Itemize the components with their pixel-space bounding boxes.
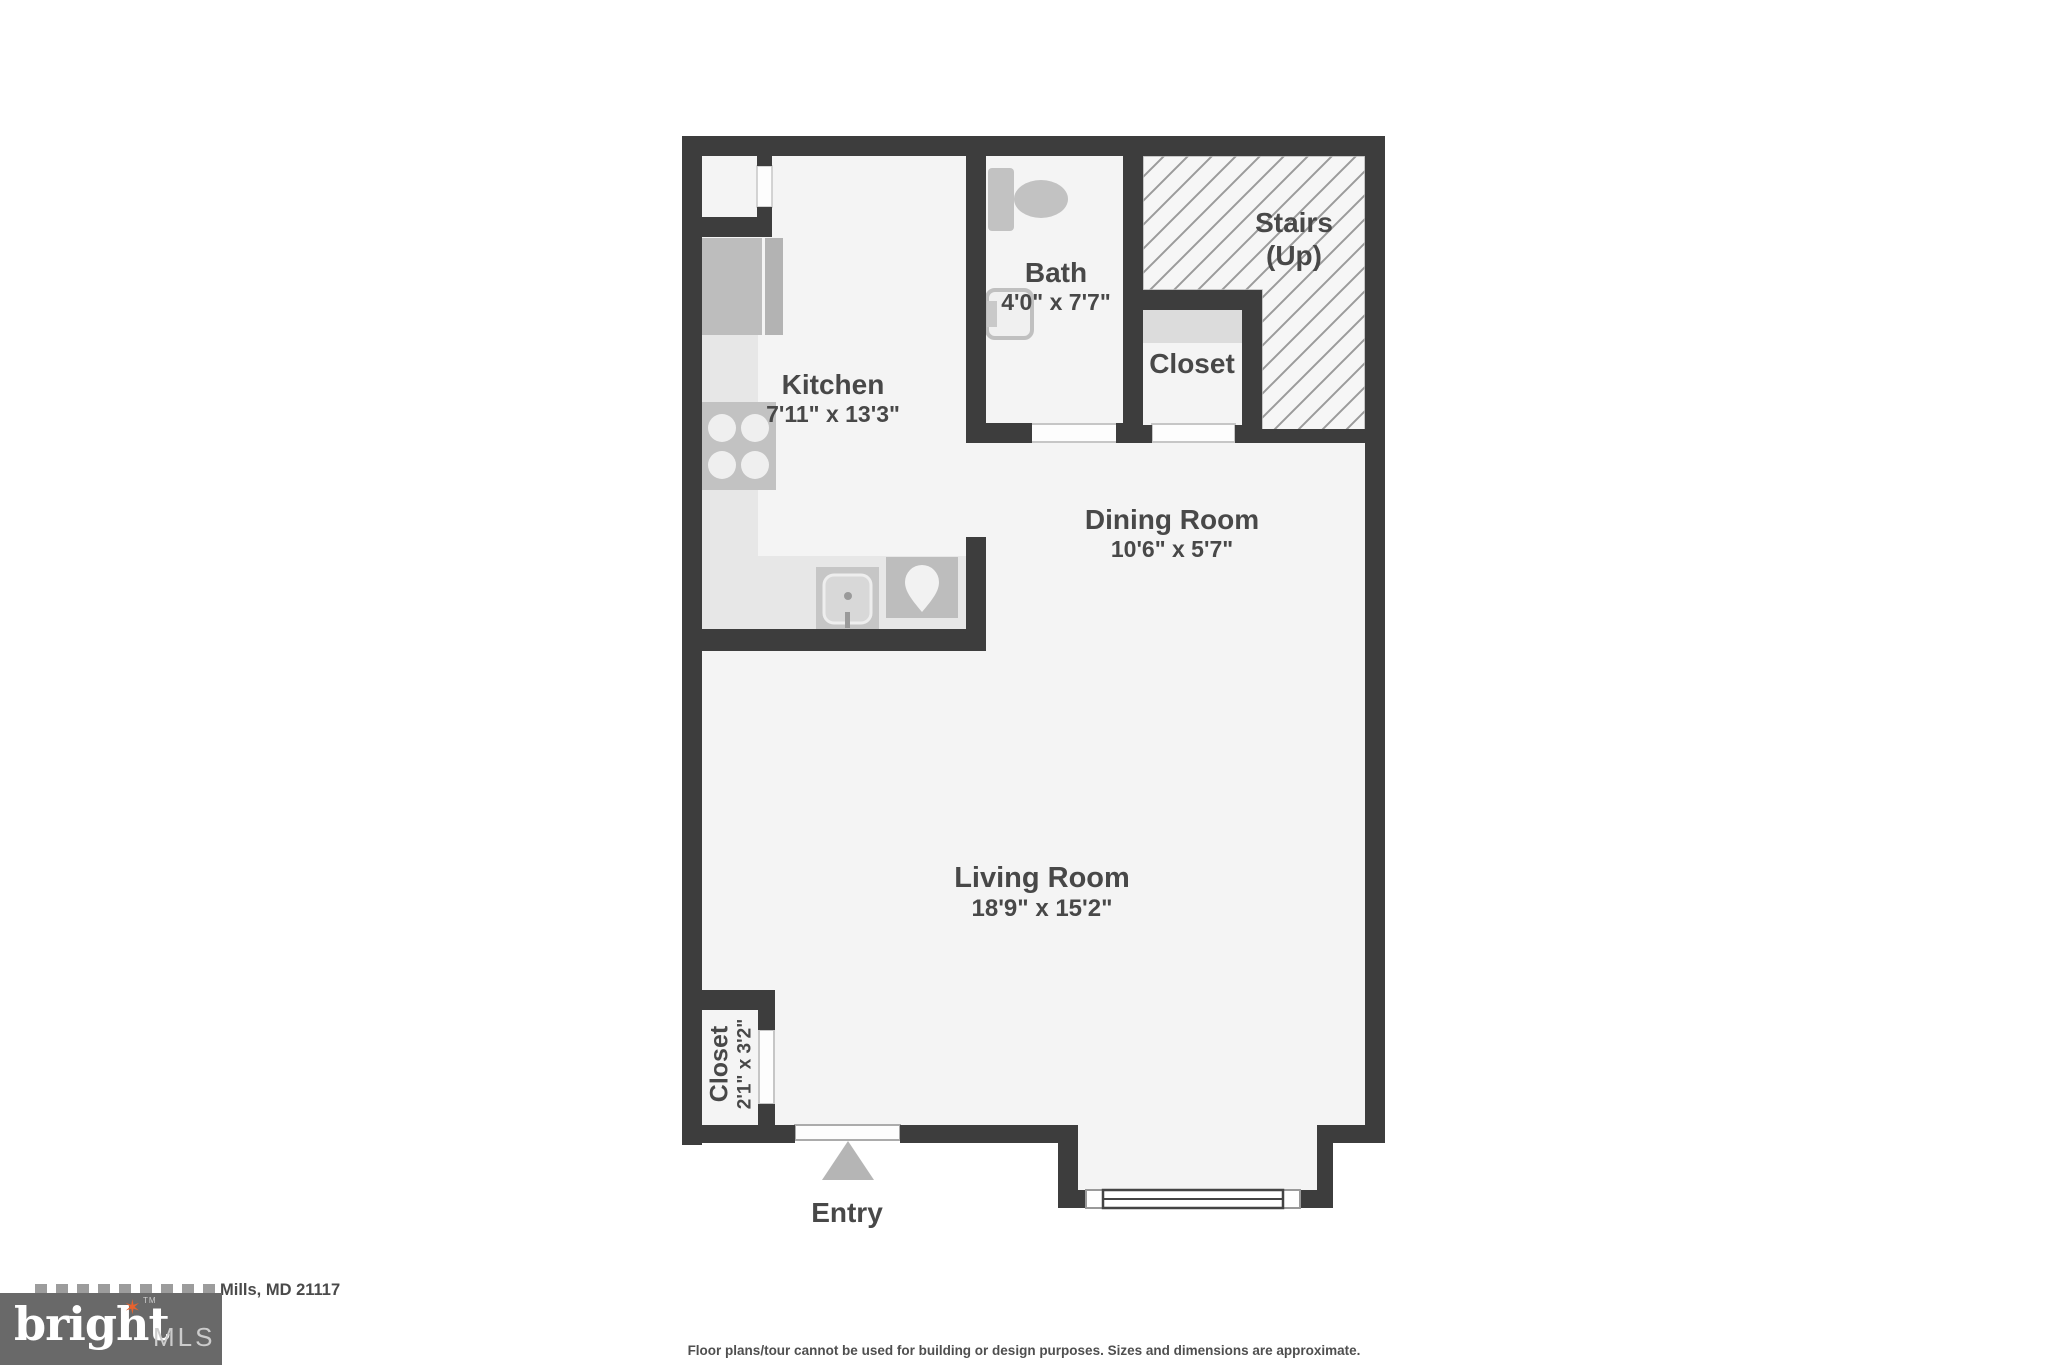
label-closet-entry: Closet 2'1" x 3'2" bbox=[706, 1019, 757, 1109]
closet-upper-name: Closet bbox=[1112, 347, 1272, 380]
stairs-sublabel: (Up) bbox=[1204, 239, 1384, 272]
label-bath: Bath 4'0" x 7'7" bbox=[946, 256, 1166, 316]
label-living-room: Living Room 18'9" x 15'2" bbox=[932, 861, 1152, 924]
dishwasher-icon bbox=[816, 567, 879, 631]
floorplan-canvas: Kitchen 7'11" x 13'3" Bath 4'0" x 7'7" S… bbox=[0, 0, 2048, 1365]
closet-entry-dimensions: 2'1" x 3'2" bbox=[734, 1019, 756, 1109]
logo-tm-text: TM bbox=[143, 1296, 157, 1305]
logo-star-icon: ✶ bbox=[124, 1295, 141, 1319]
disclaimer-text: Floor plans/tour cannot be used for buil… bbox=[0, 1343, 2048, 1358]
label-stairs: Stairs (Up) bbox=[1204, 206, 1384, 272]
dining-room-dimensions: 10'6" x 5'7" bbox=[1062, 536, 1282, 563]
entry-name: Entry bbox=[767, 1196, 927, 1229]
bath-name: Bath bbox=[946, 256, 1166, 289]
living-room-dimensions: 18'9" x 15'2" bbox=[932, 895, 1152, 923]
closet-entry-name: Closet bbox=[706, 1019, 735, 1109]
bath-dimensions: 4'0" x 7'7" bbox=[946, 289, 1166, 316]
address-text: Mills, MD 21117 bbox=[220, 1281, 340, 1300]
dining-room-name: Dining Room bbox=[1062, 503, 1282, 536]
entry-direction-arrow bbox=[822, 1141, 874, 1180]
label-entry: Entry bbox=[767, 1196, 927, 1229]
sink-drop-icon bbox=[886, 557, 958, 618]
kitchen-name: Kitchen bbox=[723, 368, 943, 401]
kitchen-dimensions: 7'11" x 13'3" bbox=[723, 401, 943, 428]
window-symbol bbox=[1086, 1190, 1300, 1208]
redacted-address-fragment bbox=[35, 1284, 217, 1293]
stairs-name: Stairs bbox=[1204, 206, 1384, 239]
living-room-name: Living Room bbox=[932, 861, 1152, 895]
label-kitchen: Kitchen 7'11" x 13'3" bbox=[723, 368, 943, 428]
label-dining-room: Dining Room 10'6" x 5'7" bbox=[1062, 503, 1282, 563]
label-closet-upper: Closet bbox=[1112, 347, 1272, 380]
floorplan-drawing bbox=[0, 0, 2048, 1365]
refrigerator-icon bbox=[700, 238, 783, 335]
